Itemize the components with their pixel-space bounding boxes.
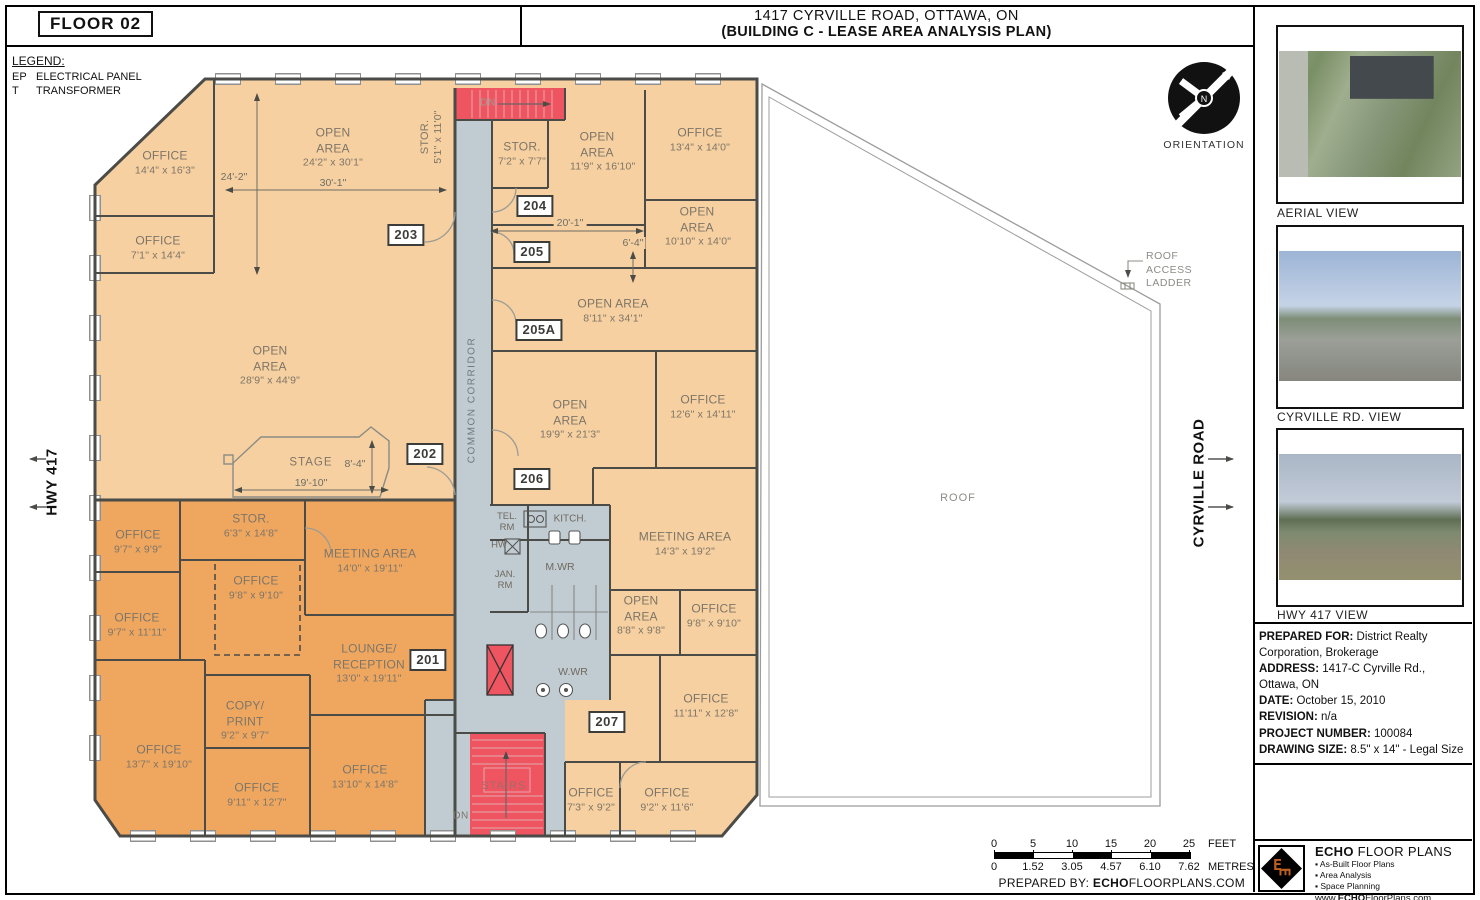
service-item: As-Built Floor Plans	[1315, 859, 1467, 870]
room-label-office: OFFICE9'11" x 12'7"	[202, 780, 312, 809]
label-stairs: STAIRS	[482, 780, 527, 792]
dim-19-10: 19'-10"	[292, 477, 331, 489]
label-stage: STAGE	[276, 456, 346, 471]
scale-metres-tick: 3.05	[1061, 861, 1082, 873]
logo-text-block: ECHO FLOOR PLANS As-Built Floor Plans Ar…	[1315, 844, 1467, 900]
label-kitchen: KITCH.	[545, 513, 595, 525]
room-label-office: OFFICE9'2" x 11'6"	[612, 785, 722, 814]
website-url: www.ECHOFloorPlans.com	[1315, 893, 1467, 900]
room-badge-205A: 205A	[515, 319, 562, 341]
cyrville-road-photo	[1279, 251, 1461, 381]
hwy417-view-frame	[1276, 428, 1464, 607]
room-badge-204: 204	[516, 195, 553, 217]
room-badge-207: 207	[588, 711, 625, 733]
room-label-office: OFFICE13'7" x 19'10"	[104, 742, 214, 771]
dim-20-1: 20'-1"	[554, 217, 587, 229]
service-item: Space Planning	[1315, 881, 1467, 892]
room-label-open-area: OPEN AREA8'11" x 34'1"	[553, 296, 673, 325]
scale-feet-tick: 25	[1183, 838, 1195, 850]
scale-metres-tick: 4.57	[1100, 861, 1121, 873]
info-date: DATE: October 15, 2010	[1259, 693, 1466, 709]
room-label-open-area: OPEN AREA19'9" x 21'3"	[540, 398, 600, 443]
label-roof: ROOF	[940, 492, 976, 504]
room-label-office: OFFICE7'1" x 14'4"	[108, 233, 208, 262]
room-label-office: OFFICE13'4" x 14'0"	[640, 125, 760, 154]
info-revision: REVISION: n/a	[1259, 709, 1466, 725]
orientation-label: ORIENTATION	[1163, 139, 1244, 151]
hwy-417-photo	[1279, 454, 1461, 580]
prepared-by-line: PREPARED BY: ECHOFLOORPLANS.COM	[940, 876, 1245, 890]
room-label-office: OFFICE9'8" x 9'10"	[659, 601, 769, 630]
label-common-corridor: COMMON CORRIDOR	[467, 337, 478, 463]
room-label-meeting-area: MEETING AREA14'0" x 19'11"	[295, 546, 445, 575]
room-label-storage: STOR.5'1" x 11'0"	[418, 82, 446, 192]
info-project-number: PROJECT NUMBER: 100084	[1259, 726, 1466, 742]
door-arcs	[305, 188, 646, 788]
project-info-block: PREPARED FOR: District Realty Corporatio…	[1253, 622, 1472, 765]
aerial-photo	[1279, 51, 1461, 177]
label-cyrville-road: CYRVILLE ROAD	[1191, 419, 1208, 548]
room-label-copy-print: COPY/ PRINT9'2" x 9'7"	[218, 699, 272, 744]
svg-text:N: N	[1201, 94, 1208, 104]
scale-feet-tick: 15	[1105, 838, 1117, 850]
label-dn-bottom: DN	[453, 811, 468, 822]
dim-30-1: 30'-1"	[317, 177, 350, 189]
label-mens-washroom: M.WR	[538, 561, 582, 573]
aerial-view-frame	[1276, 25, 1464, 204]
scale-feet-tick: 20	[1144, 838, 1156, 850]
room-label-open-area: OPEN AREA28'9" x 44'9"	[238, 344, 302, 389]
room-badge-206: 206	[513, 468, 550, 490]
room-label-open-area: OPEN AREA24'2" x 30'1"	[301, 126, 365, 171]
elevator	[487, 645, 513, 695]
room-label-office: OFFICE9'7" x 9'9"	[93, 527, 183, 556]
room-label-open-area: OPEN AREA11'9" x 16'10"	[570, 130, 624, 175]
cyrville-view-label: CYRVILLE RD. VIEW	[1277, 410, 1401, 424]
room-label-meeting-area: MEETING AREA14'3" x 19'2"	[610, 529, 760, 558]
dim-6-4: 6'-4"	[621, 237, 646, 249]
room-badge-203: 203	[387, 224, 424, 246]
room-label-office: OFFICE13'10" x 14'8"	[305, 762, 425, 791]
scale-feet-tick: 5	[1030, 838, 1036, 850]
aerial-view-label: AERIAL VIEW	[1277, 206, 1359, 220]
scale-feet-tick: 0	[991, 838, 997, 850]
company-logo-block: E E ECHO FLOOR PLANS As-Built Floor Plan…	[1253, 839, 1472, 894]
logo-letter: E	[1276, 867, 1294, 876]
scale-metres-tick: 0	[991, 861, 997, 873]
room-label-storage: STOR.6'3" x 14'8"	[196, 511, 306, 540]
scale-feet-unit: FEET	[1208, 838, 1236, 850]
echo-logo-icon: E E	[1258, 845, 1305, 892]
north-arrow-icon: N	[1164, 57, 1244, 147]
label-tel-room: TEL. RM	[492, 512, 522, 534]
label-janitor-room: JAN. RM	[490, 570, 520, 592]
scale-metres-unit: METRES	[1208, 861, 1254, 873]
room-badge-202: 202	[406, 443, 443, 465]
room-label-lounge-reception: LOUNGE/ RECEPTION13'0" x 19'11"	[327, 642, 411, 687]
room-label-office: OFFICE14'4" x 16'3"	[120, 148, 210, 177]
brand-name: ECHO FLOOR PLANS	[1315, 844, 1467, 859]
room-label-storage: STOR.7'2" x 7'7"	[487, 139, 557, 168]
label-hwy-417: HWY 417	[44, 448, 61, 515]
room-label-office: OFFICE9'7" x 11'11"	[90, 610, 185, 639]
room-label-open-area: OPEN AREA10'10" x 14'0"	[665, 205, 729, 250]
room-badge-201: 201	[409, 649, 446, 671]
cyrville-view-frame	[1276, 225, 1464, 409]
scale-feet-tick: 10	[1066, 838, 1078, 850]
scale-metres-tick: 6.10	[1139, 861, 1160, 873]
label-womens-washroom: W.WR	[551, 666, 595, 678]
label-hot-water: HW	[487, 541, 511, 552]
roof-outline	[760, 84, 1160, 806]
dim-24-2: 24'-2"	[221, 171, 248, 183]
room-label-office: OFFICE11'11" x 12'8"	[646, 691, 766, 720]
label-roof-access-ladder: ROOF ACCESS LADDER	[1146, 250, 1206, 291]
scale-metres-tick: 7.62	[1178, 861, 1199, 873]
room-label-office: OFFICE9'8" x 9'10"	[206, 573, 306, 602]
info-prepared-for: PREPARED FOR: District Realty Corporatio…	[1259, 629, 1466, 661]
dim-8-4: 8'-4"	[345, 458, 366, 470]
room-label-office: OFFICE12'6" x 14'11"	[638, 392, 768, 421]
hwy417-view-label: HWY 417 VIEW	[1277, 608, 1368, 622]
room-badge-205: 205	[513, 241, 550, 263]
service-item: Area Analysis	[1315, 870, 1467, 881]
drawing-sheet: FLOOR 02 1417 CYRVILLE ROAD, OTTAWA, ON …	[0, 0, 1480, 900]
scale-bar-strip	[994, 852, 1191, 859]
scale-metres-tick: 1.52	[1022, 861, 1043, 873]
label-dn-top: DN	[480, 98, 495, 109]
info-address: ADDRESS: 1417-C Cyrville Rd., Ottawa, ON	[1259, 661, 1466, 693]
info-drawing-size: DRAWING SIZE: 8.5" x 14" - Legal Size	[1259, 742, 1466, 758]
